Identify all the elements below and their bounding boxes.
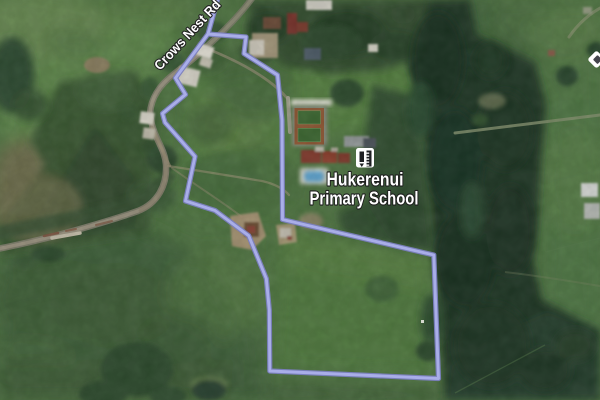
svg-text:Primary School: Primary School xyxy=(310,189,419,209)
svg-text:Hukerenui: Hukerenui xyxy=(327,170,404,190)
